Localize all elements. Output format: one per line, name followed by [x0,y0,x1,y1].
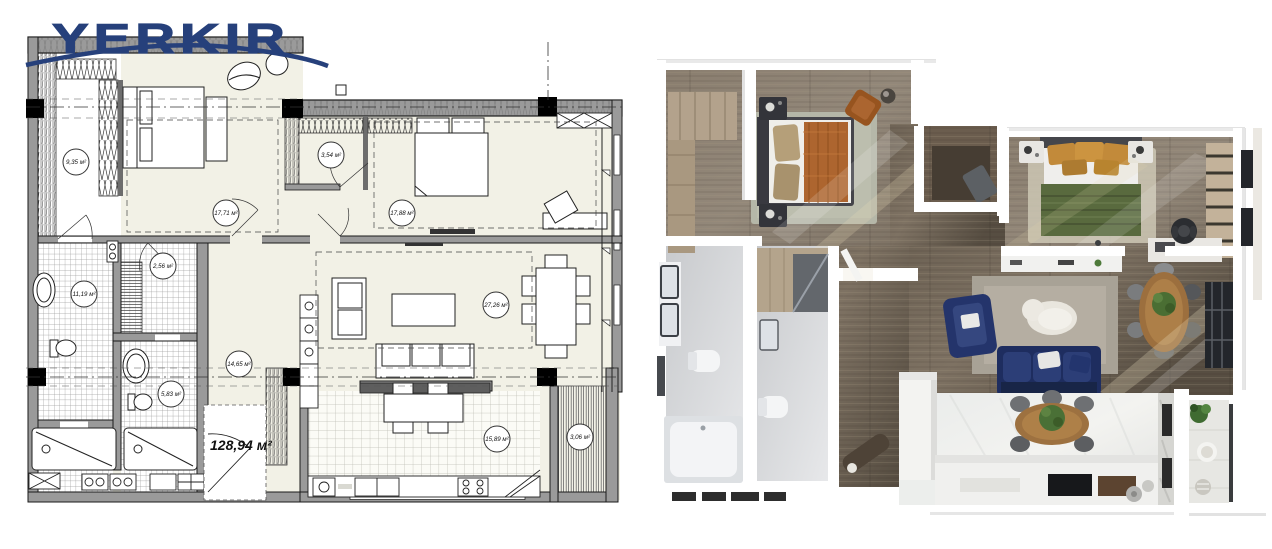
svg-text:17,88 м²: 17,88 м² [390,210,414,217]
svg-text:27,26 м²: 27,26 м² [483,302,508,309]
svg-text:3,06 м²: 3,06 м² [570,434,591,441]
svg-text:9,35 м²: 9,35 м² [66,159,87,166]
svg-text:128,94 м²: 128,94 м² [210,437,272,453]
svg-text:5,83 м²: 5,83 м² [161,391,182,398]
svg-text:3,54 м²: 3,54 м² [321,152,342,159]
svg-text:2,56 м²: 2,56 м² [152,263,174,270]
svg-text:17,71 м²: 17,71 м² [214,210,238,217]
svg-text:14,65 м²: 14,65 м² [227,361,251,368]
svg-text:11,19 м²: 11,19 м² [72,291,96,298]
svg-text:15,89 м²: 15,89 м² [485,436,509,443]
